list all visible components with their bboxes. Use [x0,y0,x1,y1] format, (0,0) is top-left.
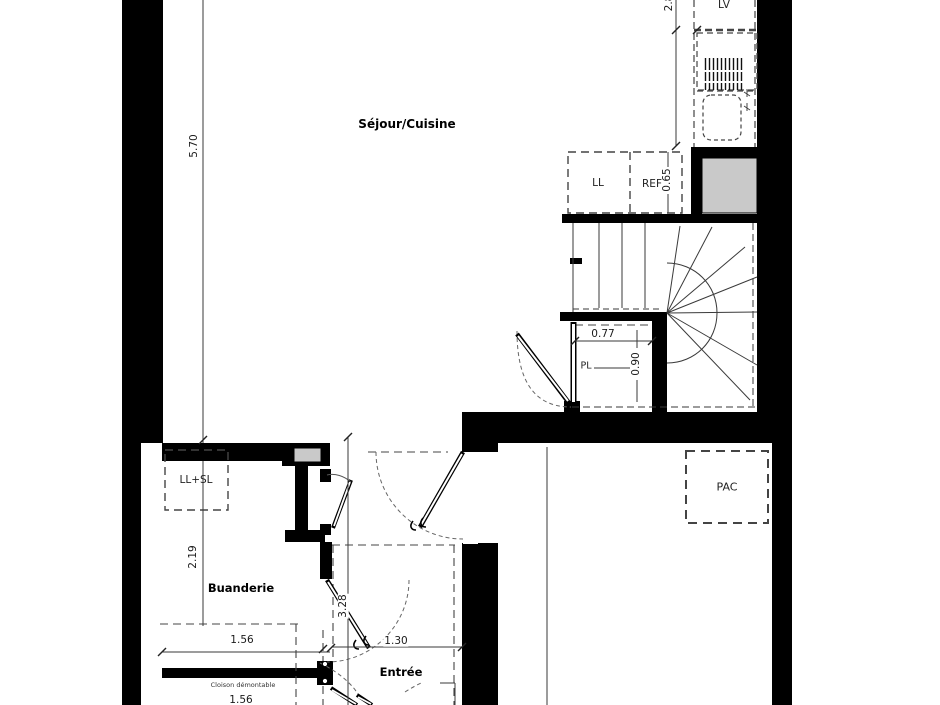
hinge-nub [323,662,328,667]
faucet-icon [744,89,750,111]
stair-winder [667,247,745,313]
hinge-nub [323,679,328,684]
dim-text-156-lower: 1.56 [228,695,253,705]
stair-winder [667,312,757,313]
wall-duct-left [691,147,702,214]
dim-text-219: 2.19 [188,544,199,569]
cooktop-hatch [703,72,744,81]
appliance-label-llsl: LL+SL [179,474,212,486]
equipment-label-pac: PAC [717,481,738,494]
walls [122,0,792,705]
partition-label-cloison: Cloison démontable [211,681,276,689]
dim-text-28: 2.8 [664,0,675,12]
door-leaves [327,334,569,705]
dimension-lines [158,0,701,705]
wall-pl-top [560,312,667,321]
dim-text-077: 0.77 [590,329,615,340]
wall-pl-right [652,321,667,412]
stair-winder [667,277,757,313]
stair-winder [667,313,757,365]
door-jamb-buanderie-top [320,469,331,482]
room-label-entree: Entrée [380,665,423,679]
door-arc-entree [327,580,409,662]
wall-buanderie-right [295,460,308,542]
wall-right-lower [772,443,792,705]
door-handle-marks [354,518,426,649]
appliance-label-ll: LL [592,177,604,189]
dim-text-090: 0.90 [631,351,642,376]
room-label-sejour-cuisine: Séjour/Cuisine [358,117,455,131]
duct-kitchen [702,158,757,213]
duct-buanderie [294,448,321,462]
floor-plan: Séjour/Cuisine Buanderie Entrée LL REF L… [0,0,940,705]
wall-buanderie-bottom [285,530,325,542]
stair-winder [667,313,750,400]
appliance-label-ref: REF [642,178,662,190]
appliance-label-lv: LV [718,0,730,11]
equipment-boxes [165,152,768,523]
dim-text-130: 1.30 [383,636,408,647]
dim-text-570: 5.70 [189,133,200,158]
dim-text-065: 0.65 [662,167,673,192]
cooktop-hatch [703,58,744,70]
wall-notch [463,537,478,544]
doors [320,322,574,705]
door-arc-fragment [405,682,423,692]
stair-handrail-tick [570,258,582,264]
wall-right-upper [757,0,792,443]
kitchen-counter [694,0,757,147]
dim-text-156-upper: 1.56 [229,635,254,646]
room-label-buanderie: Buanderie [208,581,274,595]
door-jamb-buanderie-bottom [320,524,331,535]
wall-kitchen-bottom [562,214,758,223]
dim-text-328: 3.28 [338,593,349,618]
wall-main-horizontal [462,412,772,443]
wall-entree-right [462,543,498,705]
partition-cloison [162,668,317,678]
wall-main-block [462,412,498,452]
wall-left-upper [122,0,163,443]
closet-label-pl: PL [580,361,591,372]
sink-outline [703,95,741,140]
wall-left-lower [122,443,141,705]
cooktop-hatch [703,83,744,90]
plan-linework [0,0,940,705]
wall-corridor-stub [320,542,332,579]
